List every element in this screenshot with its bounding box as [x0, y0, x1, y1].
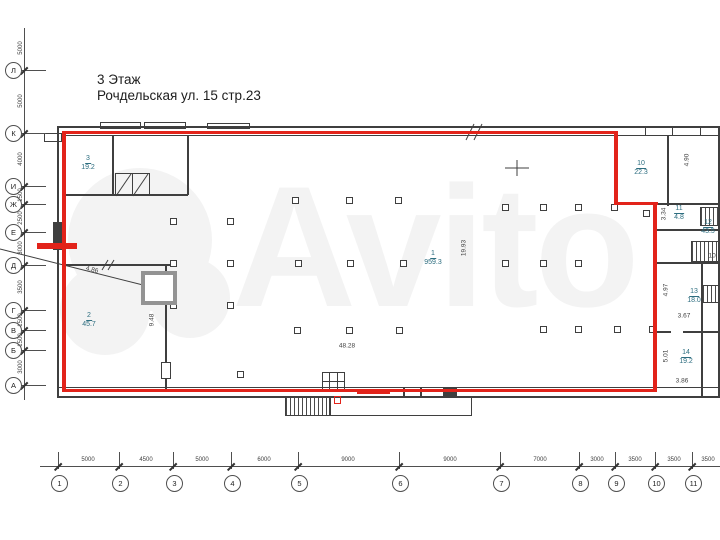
grid-column — [502, 204, 509, 211]
left-axis-bubble: Л — [5, 62, 22, 79]
room-number: 2 — [86, 312, 92, 321]
room-label: 319.2 — [81, 155, 95, 171]
plan-title-address: Рочдельская ул. 15 стр.23 — [97, 88, 261, 104]
left-axis-dim: 3000 — [18, 235, 24, 261]
grid-column — [400, 260, 407, 267]
grid-column — [227, 302, 234, 309]
left-axis-dim: 3500 — [18, 274, 24, 300]
grid-column — [575, 326, 582, 333]
room-number: 1 — [430, 250, 436, 259]
room-area: 45.7 — [82, 321, 96, 329]
bottom-axis-dim: 9000 — [436, 457, 464, 463]
bottom-axis-dim: 5000 — [188, 457, 216, 463]
wall — [57, 126, 59, 398]
red-boundary-segment — [62, 131, 66, 392]
red-boundary-segment — [614, 202, 658, 205]
wall-outline — [100, 122, 141, 129]
left-axis-dim: 1500 — [18, 327, 24, 353]
room-label: 1959.3 — [424, 250, 442, 266]
grid-column — [502, 260, 509, 267]
dimension-label: 19.93 — [461, 240, 468, 256]
grid-column — [237, 371, 244, 378]
room-area: 22.3 — [634, 169, 648, 177]
bottom-axis-dim: 7000 — [526, 457, 554, 463]
red-boundary-segment — [37, 243, 77, 249]
grid-column — [294, 327, 301, 334]
left-axis-bubble: К — [5, 125, 22, 142]
bottom-axis-dim: 9000 — [334, 457, 362, 463]
room-label: 1022.3 — [634, 160, 648, 176]
grid-column — [611, 204, 618, 211]
dimension-label: 4.90 — [684, 154, 691, 167]
bottom-axis-bubble: 10 — [648, 475, 665, 492]
wall — [645, 127, 646, 136]
room-area: 19.2 — [679, 358, 693, 366]
room-area: 959.3 — [424, 259, 442, 267]
room-label: 245.7 — [82, 312, 96, 328]
grid-column — [292, 197, 299, 204]
grid-column — [540, 204, 547, 211]
grid-column — [575, 260, 582, 267]
red-boundary-segment — [357, 390, 390, 394]
floorplan-page: Avito 3 Этаж Рочдельская ул. 15 стр.23 3… — [0, 0, 720, 540]
room-number: 3 — [85, 155, 91, 164]
room-number: 13 — [689, 288, 699, 297]
wall — [657, 331, 671, 333]
grid-column — [395, 197, 402, 204]
dimension-label: 10. — [708, 253, 717, 260]
dimension-label: 3.86 — [676, 378, 689, 385]
dimension-label: 48.28 — [339, 343, 355, 350]
dimension-label: 9.48 — [149, 314, 156, 327]
left-axis-line — [24, 28, 25, 400]
elevator-shaft — [141, 271, 177, 305]
room-label: 1243.5 — [701, 219, 715, 235]
wall — [700, 127, 701, 136]
bottom-axis-bubble: 4 — [224, 475, 241, 492]
room-number: 14 — [681, 349, 691, 358]
wall — [57, 387, 720, 388]
wall-outline — [330, 396, 472, 416]
bottom-axis-line — [40, 466, 720, 467]
staircase-hatch — [702, 285, 720, 303]
wall-outline — [207, 123, 250, 129]
left-axis-dim: 5000 — [18, 35, 24, 61]
wall — [657, 262, 720, 264]
room-label: 1419.2 — [679, 349, 693, 365]
room-area: 19.2 — [81, 164, 95, 172]
bottom-axis-dim: 3500 — [621, 457, 649, 463]
staircase-hatch — [285, 397, 330, 416]
wall — [672, 127, 673, 136]
wall-outline — [161, 362, 171, 379]
dimension-label: 5.01 — [663, 350, 670, 363]
grid-column — [575, 204, 582, 211]
wall-outline — [115, 173, 133, 196]
room-label: 1318.0 — [687, 288, 701, 304]
bottom-axis-dim: 3000 — [583, 457, 611, 463]
bottom-axis-dim: 5000 — [74, 457, 102, 463]
wall — [62, 135, 718, 136]
room-number: 12 — [703, 219, 713, 228]
bottom-axis-bubble: 1 — [51, 475, 68, 492]
bottom-axis-bubble: 7 — [493, 475, 510, 492]
bottom-axis-bubble: 5 — [291, 475, 308, 492]
red-boundary-segment — [62, 131, 618, 134]
left-axis-dim: 3000 — [18, 354, 24, 380]
wall — [62, 264, 176, 266]
room-number: 10 — [636, 160, 646, 169]
bottom-axis-bubble: 9 — [608, 475, 625, 492]
grid-column — [227, 260, 234, 267]
bottom-axis-bubble: 8 — [572, 475, 589, 492]
bottom-axis-dim: 4500 — [132, 457, 160, 463]
left-axis-dim: 4000 — [18, 146, 24, 172]
grid-column — [540, 326, 547, 333]
bottom-axis-dim: 3500 — [694, 457, 720, 463]
grid-column — [227, 218, 234, 225]
grid-column — [643, 210, 650, 217]
left-axis-dim: 2500 — [18, 205, 24, 231]
wall-outline — [44, 133, 62, 142]
red-boundary-segment — [614, 131, 618, 205]
bottom-axis-bubble: 6 — [392, 475, 409, 492]
bottom-axis-dim: 6000 — [250, 457, 278, 463]
red-boundary-segment — [334, 396, 341, 404]
grid-column — [396, 327, 403, 334]
wall — [667, 136, 669, 206]
dimension-label: 3.34 — [661, 208, 668, 221]
room-area: 43.5 — [701, 228, 715, 236]
room-area: 18.0 — [687, 297, 701, 305]
wall — [187, 136, 189, 195]
grid-column — [614, 326, 621, 333]
wall — [112, 136, 114, 195]
left-axis-dim: 5000 — [18, 88, 24, 114]
plan-title: 3 Этаж Рочдельская ул. 15 стр.23 — [97, 72, 261, 104]
red-boundary-segment — [653, 202, 657, 392]
grid-column — [346, 327, 353, 334]
grid-column — [170, 260, 177, 267]
bottom-axis-bubble: 2 — [112, 475, 129, 492]
bottom-axis-bubble: 11 — [685, 475, 702, 492]
grid-column — [540, 260, 547, 267]
bottom-axis-dim: 3500 — [660, 457, 688, 463]
dimension-label: 4.97 — [663, 284, 670, 297]
room-number: 11 — [674, 205, 683, 214]
room-label: 114.8 — [674, 205, 684, 221]
wall-outline — [144, 122, 186, 129]
grid-column — [346, 197, 353, 204]
dimension-label: 3.67 — [678, 313, 691, 320]
wall — [701, 262, 703, 396]
grid-column — [170, 218, 177, 225]
wall-outline — [132, 173, 150, 196]
grid-column — [295, 260, 302, 267]
room-area: 4.8 — [674, 214, 684, 222]
grid-column — [347, 260, 354, 267]
bottom-axis-bubble: 3 — [166, 475, 183, 492]
plan-title-floor: 3 Этаж — [97, 72, 261, 88]
